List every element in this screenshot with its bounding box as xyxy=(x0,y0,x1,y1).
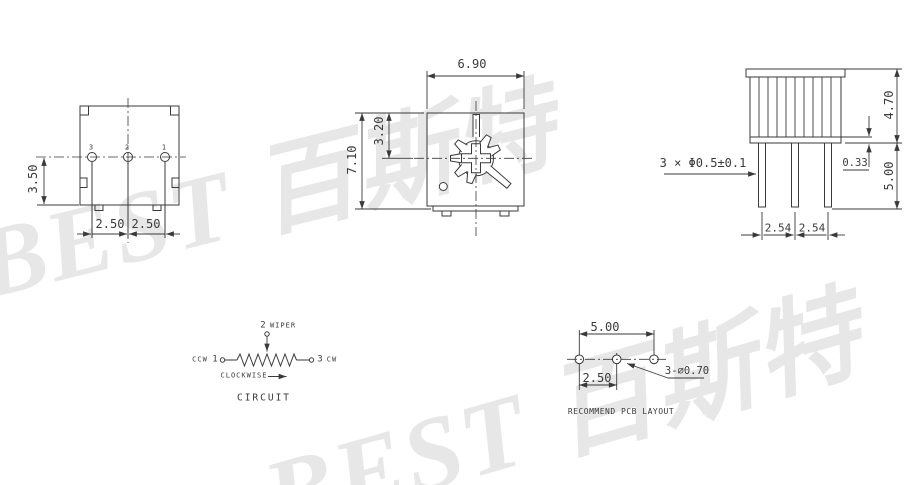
rotor xyxy=(451,115,512,189)
side-pin3 xyxy=(759,143,766,207)
side-dim-pitch-a-label: 2.54 xyxy=(765,223,792,234)
resistor-zigzag xyxy=(237,354,297,366)
side-dim-step-label: 0.33 xyxy=(842,158,867,169)
circuit-ccw-label: CCW xyxy=(192,357,208,364)
circuit-pin2-label: 2 xyxy=(260,322,265,331)
circuit-pin1-label: 1 xyxy=(212,356,217,365)
front-notch-top-right xyxy=(171,106,180,115)
side-dim-body-label: 4.70 xyxy=(883,91,895,120)
top-base-plate xyxy=(433,206,518,211)
side-dim-lead-label: 5.00 xyxy=(883,162,895,191)
side-body xyxy=(750,77,841,143)
front-notch-top-left xyxy=(80,106,89,115)
side-dim-pitch-b-label: 2.54 xyxy=(799,223,826,234)
circuit-schematic xyxy=(220,332,313,377)
top-dim-center-label: 3.20 xyxy=(373,117,385,146)
top-foot-right xyxy=(500,211,509,216)
side-lead-note-label: 3 × Φ0.5±0.1 xyxy=(660,157,747,169)
front-pin1-number: 1 xyxy=(162,145,166,152)
front-dim-pitch-b-label: 2.50 xyxy=(132,218,161,230)
front-notch-left xyxy=(80,178,87,188)
side-view xyxy=(664,69,902,240)
front-foot-right xyxy=(153,205,161,211)
side-pin1 xyxy=(825,143,832,207)
circuit-pin3-label: 3 xyxy=(317,356,322,365)
engineering-drawing-page: BEST 百斯特 BEST 百斯特 xyxy=(0,0,910,485)
pcb-title: RECOMMEND PCB LAYOUT xyxy=(568,408,674,416)
circuit-terminal-3 xyxy=(309,358,313,362)
front-pin3-number: 3 xyxy=(89,145,93,152)
top-dim-width-label: 6.90 xyxy=(458,58,487,70)
circuit-terminal-2 xyxy=(265,332,269,336)
front-foot-left xyxy=(95,205,103,211)
pcb-dim-half-label: 2.50 xyxy=(583,372,612,384)
front-pin2-number: 2 xyxy=(125,145,129,152)
circuit-title: CIRCUIT xyxy=(237,393,291,403)
side-pin2 xyxy=(792,143,799,207)
top-index-hole xyxy=(439,183,447,191)
drawing-linework xyxy=(0,0,910,485)
rotor-stop-arm xyxy=(486,166,511,189)
front-dim-height-label: 3.50 xyxy=(27,165,39,194)
side-dims xyxy=(664,69,902,240)
circuit-wiper-label: WIPER xyxy=(270,323,296,330)
front-notch-right xyxy=(172,178,179,188)
front-dim-pitch-a-label: 2.50 xyxy=(96,218,125,230)
top-view xyxy=(355,71,532,236)
pcb-dim-span-label: 5.00 xyxy=(591,321,620,333)
top-foot-left xyxy=(442,211,451,216)
front-dim-3-50 xyxy=(37,158,79,205)
circuit-clockwise-label: CLOCKWISE xyxy=(221,373,268,380)
top-dim-height-label: 7.10 xyxy=(346,146,358,175)
circuit-terminal-1 xyxy=(220,358,224,362)
side-ribs xyxy=(750,77,841,137)
pcb-hole-note-label: 3-∅0.70 xyxy=(665,366,709,377)
side-cap xyxy=(746,69,845,77)
circuit-cw-label: CW xyxy=(327,357,337,364)
